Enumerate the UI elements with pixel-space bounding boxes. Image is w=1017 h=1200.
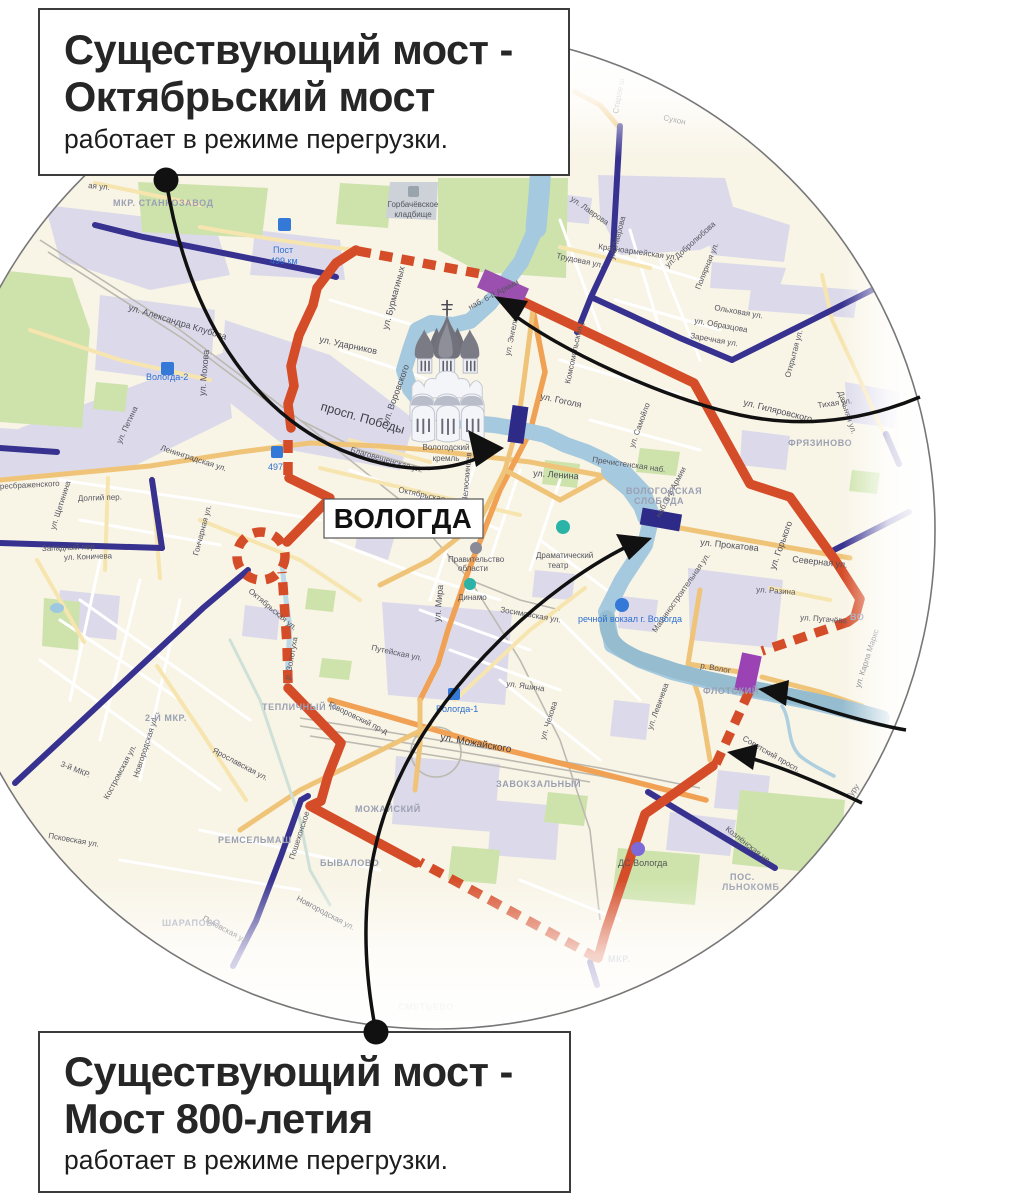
svg-text:театр: театр xyxy=(548,561,569,570)
svg-text:ая ул.: ая ул. xyxy=(88,181,110,192)
svg-text:Существующий мост -: Существующий мост - xyxy=(64,1048,513,1095)
svg-text:Октябрьский мост: Октябрьский мост xyxy=(64,73,435,120)
svg-text:Драматический: Драматический xyxy=(536,551,593,560)
svg-text:кладбище: кладбище xyxy=(394,210,432,219)
svg-text:Существующий мост -: Существующий мост - xyxy=(64,26,513,73)
svg-text:области: области xyxy=(458,564,488,573)
svg-text:Правительство: Правительство xyxy=(448,555,505,564)
svg-text:Горбачёвское: Горбачёвское xyxy=(388,200,439,209)
svg-text:2-Й МКР.: 2-Й МКР. xyxy=(145,712,187,723)
svg-text:речной вокзал г. Вологда: речной вокзал г. Вологда xyxy=(578,614,682,624)
svg-text:Долгий пер.: Долгий пер. xyxy=(78,492,122,503)
svg-text:ФЛОТСКИЙ: ФЛОТСКИЙ xyxy=(703,685,759,696)
svg-text:ТЕПЛИЧНЫЙ М: ТЕПЛИЧНЫЙ М xyxy=(262,701,337,712)
svg-text:РЕМСЕЛЬМАШ: РЕМСЕЛЬМАШ xyxy=(218,835,292,845)
svg-text:Пост: Пост xyxy=(273,245,293,255)
svg-text:499 км: 499 км xyxy=(270,256,298,266)
svg-text:ул. Коничева: ул. Коничева xyxy=(64,551,113,562)
svg-text:Динамо: Динамо xyxy=(458,593,487,602)
svg-text:Мост 800-летия: Мост 800-летия xyxy=(64,1095,373,1142)
svg-text:ВОЛОГДА: ВОЛОГДА xyxy=(334,503,472,534)
svg-text:кремль: кремль xyxy=(433,454,460,463)
svg-text:497: 497 xyxy=(268,462,283,472)
svg-text:ДС Вологда: ДС Вологда xyxy=(618,858,667,868)
svg-text:МКР. СТАНКОЗАВОД: МКР. СТАНКОЗАВОД xyxy=(113,198,214,208)
svg-text:ВОЛОГОДСКАЯ: ВОЛОГОДСКАЯ xyxy=(626,486,702,496)
svg-text:работает в режиме перегрузки.: работает в режиме перегрузки. xyxy=(64,1145,448,1175)
svg-text:ЗАВОКЗАЛЬНЫЙ: ЗАВОКЗАЛЬНЫЙ xyxy=(496,778,581,789)
svg-text:Вологодский: Вологодский xyxy=(423,443,470,452)
svg-text:работает в режиме перегрузки.: работает в режиме перегрузки. xyxy=(64,124,448,154)
svg-text:СЛОБОДА: СЛОБОДА xyxy=(634,496,684,506)
